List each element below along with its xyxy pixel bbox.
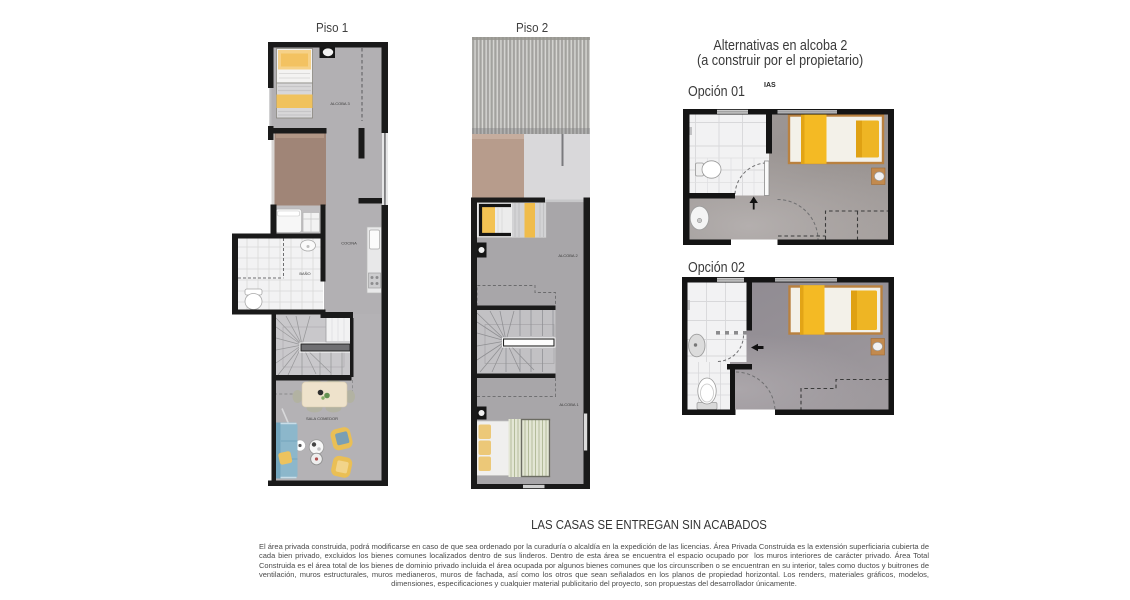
svg-text:ALCOBA 3: ALCOBA 3 — [330, 101, 350, 106]
svg-text:ALCOBA 2: ALCOBA 2 — [558, 253, 578, 258]
svg-text:SALA COMEDOR: SALA COMEDOR — [306, 416, 338, 421]
svg-text:BAÑO: BAÑO — [299, 271, 310, 276]
svg-text:ALCOBA 1: ALCOBA 1 — [559, 402, 579, 407]
svg-text:COCINA: COCINA — [341, 241, 357, 246]
